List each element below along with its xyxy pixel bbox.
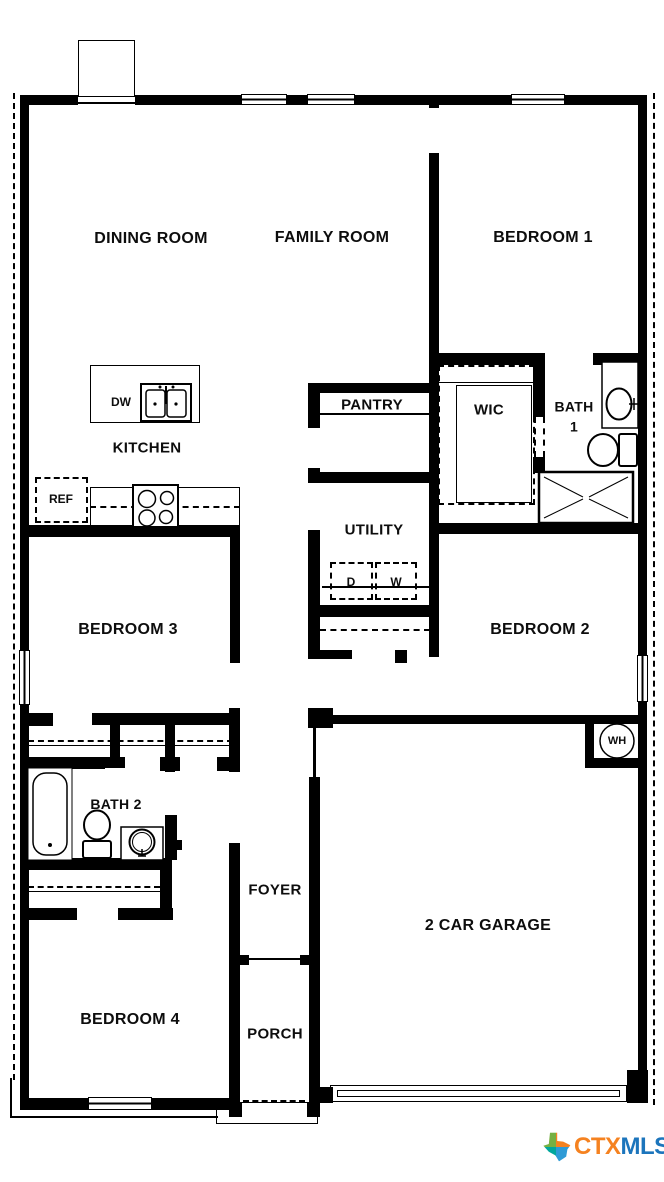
wall-segment	[308, 383, 320, 428]
room-label-bedroom-4: BEDROOM 4	[80, 1009, 180, 1031]
wall-segment	[395, 650, 407, 663]
texas-icon	[541, 1132, 571, 1162]
fixture-label-dryer: D	[347, 575, 356, 589]
wall-segment	[309, 777, 320, 1103]
room-label-kitchen: KITCHEN	[113, 438, 182, 459]
wall-segment	[110, 725, 120, 760]
wall-segment	[439, 353, 545, 365]
fixture-label-water-heater: WH	[608, 735, 626, 747]
room-label-bedroom-3: BEDROOM 3	[78, 619, 178, 641]
logo-prefix: CTX	[574, 1133, 621, 1161]
wall-line	[28, 745, 233, 746]
fixture-label-refrigerator: REF	[49, 492, 73, 506]
logo-suffix: MLS	[621, 1133, 664, 1161]
fixture-outline	[337, 1090, 620, 1097]
room-label-bedroom-2: BEDROOM 2	[490, 619, 590, 641]
wall-segment	[20, 95, 29, 650]
dashed-line	[243, 1100, 305, 1102]
fixture-label-dishwasher: DW	[111, 395, 131, 409]
wall-segment	[287, 95, 307, 105]
wall-line	[322, 586, 439, 588]
wall-segment	[308, 650, 352, 659]
room-label-bath-1: BATH1	[554, 397, 593, 436]
wall-segment	[105, 757, 125, 768]
wall-segment	[429, 97, 439, 108]
wall-segment	[565, 95, 647, 105]
bath2-sink	[121, 827, 163, 860]
room-label-foyer: FOYER	[248, 880, 301, 901]
wall-segment	[533, 364, 545, 417]
wall-segment	[308, 468, 320, 483]
wall-segment	[585, 758, 642, 768]
wall-line	[249, 958, 300, 960]
floor-plan: CTXMLS DINING ROOMFAMILY ROOMBEDROOM 1PA…	[0, 0, 664, 1182]
dashed-line	[534, 417, 536, 457]
wall-segment	[439, 523, 647, 534]
bath2-toilet	[83, 811, 111, 859]
wall-segment	[135, 95, 241, 105]
dashed-line	[543, 417, 545, 457]
dashed-line	[653, 93, 655, 1105]
room-label-garage: 2 CAR GARAGE	[425, 915, 551, 937]
wall-segment	[20, 757, 105, 769]
wall-line	[438, 382, 535, 383]
wall-segment	[320, 1087, 333, 1103]
bath1-sink	[602, 362, 640, 428]
wall-segment	[217, 757, 240, 771]
wall-segment	[20, 713, 53, 726]
wall-segment	[20, 908, 77, 920]
room-label-dining-room: DINING ROOM	[94, 228, 208, 250]
bath1-toilet	[588, 434, 637, 466]
fixture-label-washer: W	[390, 575, 401, 589]
bath1-shower	[539, 472, 633, 523]
wall-segment	[165, 815, 177, 860]
dashed-line	[13, 93, 15, 1080]
dashed-line	[320, 629, 430, 631]
wall-segment	[20, 858, 172, 870]
window	[241, 94, 287, 105]
wall-segment	[229, 1103, 242, 1117]
room-label-porch: PORCH	[247, 1024, 303, 1045]
fixture-outline	[78, 40, 135, 97]
window	[307, 94, 355, 105]
wall-segment	[308, 530, 320, 659]
wall-segment	[320, 383, 429, 393]
wall-segment	[92, 713, 240, 725]
wall-segment	[308, 605, 439, 617]
wall-segment	[160, 757, 180, 771]
bath2-tub	[28, 768, 72, 860]
wall-segment	[330, 715, 642, 724]
wall-line	[313, 728, 316, 777]
wall-segment	[229, 843, 240, 1110]
window	[19, 650, 30, 705]
wall-line	[28, 891, 160, 892]
room-label-bedroom-1: BEDROOM 1	[493, 227, 593, 249]
room-label-family-room: FAMILY ROOM	[275, 227, 389, 249]
room-label-bath-2: BATH 2	[90, 795, 141, 815]
dashed-line	[28, 740, 233, 742]
wall-line	[10, 1116, 218, 1118]
window	[637, 655, 648, 702]
wall-segment	[533, 457, 545, 473]
wall-segment	[320, 472, 429, 483]
wall-segment	[429, 153, 439, 657]
wall-segment	[230, 537, 240, 663]
wall-segment	[28, 525, 240, 537]
window	[88, 1097, 152, 1110]
wall-segment	[627, 1070, 648, 1103]
ctxmls-logo: CTXMLS	[541, 1130, 664, 1164]
dashed-line	[90, 506, 240, 508]
wall-line	[10, 1078, 12, 1118]
wall-segment	[118, 908, 173, 920]
wall-segment	[165, 840, 182, 850]
window	[511, 94, 565, 105]
wall-segment	[307, 1103, 320, 1117]
fixture-outline	[90, 365, 200, 423]
wall-segment	[300, 955, 320, 965]
dashed-line	[28, 886, 160, 888]
room-label-utility: UTILITY	[345, 520, 404, 541]
wall-line	[78, 102, 135, 104]
room-label-pantry: PANTRY	[341, 395, 403, 416]
wall-segment	[593, 353, 638, 365]
wall-segment	[638, 95, 647, 655]
room-label-wic: WIC	[474, 400, 504, 421]
